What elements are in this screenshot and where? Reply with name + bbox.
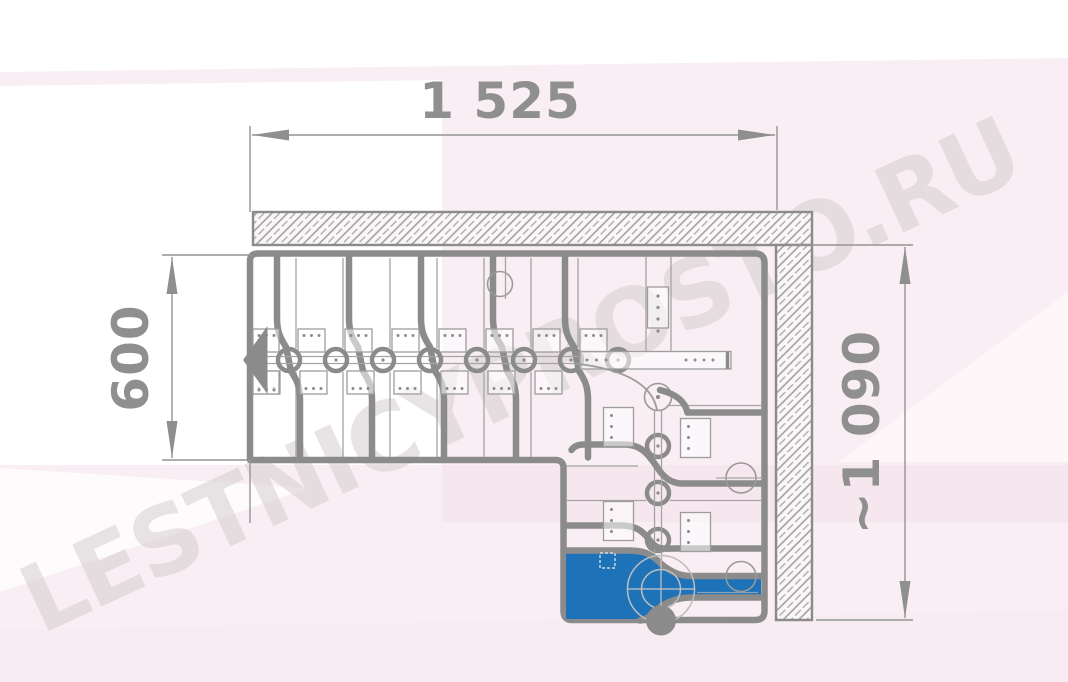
module-center-dot xyxy=(656,395,660,399)
wall-right-hatch xyxy=(776,245,812,620)
screw-dot xyxy=(610,530,613,533)
screw-dot xyxy=(553,334,556,337)
screw-dot xyxy=(600,334,603,337)
bracket-plate xyxy=(535,371,562,394)
screw-dot xyxy=(451,334,454,337)
screw-dot xyxy=(453,387,456,390)
screw-dot xyxy=(312,387,315,390)
right-dimension-label: ~1 090 xyxy=(833,330,891,534)
module-center-dot xyxy=(428,358,431,361)
screw-dot xyxy=(687,425,690,428)
screw-dot xyxy=(493,387,496,390)
wall-right xyxy=(776,245,812,620)
screw-dot xyxy=(412,334,415,337)
screw-dot xyxy=(656,317,659,320)
bracket-plate xyxy=(298,329,325,352)
wall-top-hatch xyxy=(253,212,812,245)
screw-dot xyxy=(399,387,402,390)
screw-dot xyxy=(273,334,276,337)
module-center-dot xyxy=(475,358,478,361)
screw-dot xyxy=(508,387,511,390)
bracket-plate xyxy=(604,502,634,541)
screw-dot xyxy=(367,387,370,390)
bracket-plate xyxy=(439,329,466,352)
screw-dot xyxy=(538,334,541,337)
screw-dot xyxy=(610,425,613,428)
screw-dot xyxy=(712,359,715,362)
bracket-plate xyxy=(394,371,421,394)
screw-dot xyxy=(585,334,588,337)
landing-horizontal-bar xyxy=(580,352,731,370)
screw-dot xyxy=(461,387,464,390)
module-center-dot xyxy=(569,358,572,361)
screw-dot xyxy=(586,359,589,362)
screw-dot xyxy=(491,334,494,337)
screw-dot xyxy=(318,334,321,337)
bracket-plate xyxy=(345,329,372,352)
module-center-dot xyxy=(522,358,525,361)
screw-dot xyxy=(404,334,407,337)
screw-dot xyxy=(605,359,608,362)
bracket-plate xyxy=(392,329,419,352)
bracket-plate xyxy=(441,371,468,394)
screw-dot xyxy=(310,334,313,337)
screw-dot xyxy=(687,436,690,439)
screw-dot xyxy=(303,334,306,337)
bracket-plate xyxy=(533,329,560,352)
bracket-plate xyxy=(486,329,513,352)
module-center-dot xyxy=(381,358,384,361)
screw-dot xyxy=(687,519,690,522)
staircase-drawing-canvas: LESTNICYPROSTO.RU xyxy=(0,0,1068,682)
screw-dot xyxy=(595,359,598,362)
screw-dot xyxy=(273,389,276,392)
bracket-plate xyxy=(681,513,711,552)
screw-dot xyxy=(459,334,462,337)
bracket-plate xyxy=(488,371,515,394)
screw-dot xyxy=(498,334,501,337)
module-center-dot xyxy=(656,491,659,494)
module-center-dot xyxy=(334,358,337,361)
screw-dot xyxy=(656,294,659,297)
screw-dot xyxy=(305,387,308,390)
screw-dot xyxy=(687,447,690,450)
screw-dot xyxy=(656,329,659,332)
screw-dot xyxy=(694,359,697,362)
screw-dot xyxy=(555,387,558,390)
screw-dot xyxy=(610,414,613,417)
top-dimension-label: 1 525 xyxy=(419,72,581,130)
screw-dot xyxy=(610,519,613,522)
screw-dot xyxy=(610,508,613,511)
bracket-plate xyxy=(681,419,711,458)
screw-dot xyxy=(357,334,360,337)
screw-dot xyxy=(656,306,659,309)
screw-dot xyxy=(545,334,548,337)
screw-dot xyxy=(397,334,400,337)
bracket-plate xyxy=(604,408,634,447)
screw-dot xyxy=(352,387,355,390)
module-center-dot xyxy=(656,444,659,447)
screw-dot xyxy=(610,436,613,439)
bracket-plate xyxy=(347,371,374,394)
screw-dot xyxy=(592,334,595,337)
screw-dot xyxy=(500,387,503,390)
screw-dot xyxy=(350,334,353,337)
screw-dot xyxy=(540,387,543,390)
screw-dot xyxy=(547,387,550,390)
screw-dot xyxy=(365,334,368,337)
newel-post xyxy=(646,606,676,636)
screw-dot xyxy=(687,530,690,533)
screw-dot xyxy=(703,359,706,362)
module-center-dot xyxy=(656,538,659,541)
screw-dot xyxy=(406,387,409,390)
screw-dot xyxy=(685,359,688,362)
screw-dot xyxy=(506,334,509,337)
screw-dot xyxy=(444,334,447,337)
bracket-plate xyxy=(580,329,607,352)
screw-dot xyxy=(446,387,449,390)
screw-dot xyxy=(320,387,323,390)
bracket-plate xyxy=(300,371,327,394)
screw-dot xyxy=(687,541,690,544)
screw-dot xyxy=(414,387,417,390)
module-center-dot xyxy=(287,358,290,361)
screw-dot xyxy=(258,389,261,392)
screw-dot xyxy=(359,387,362,390)
wall-top xyxy=(253,212,812,245)
left-dimension-label: 600 xyxy=(102,304,160,411)
staircase-plan-svg: LESTNICYPROSTO.RU xyxy=(0,0,1068,682)
